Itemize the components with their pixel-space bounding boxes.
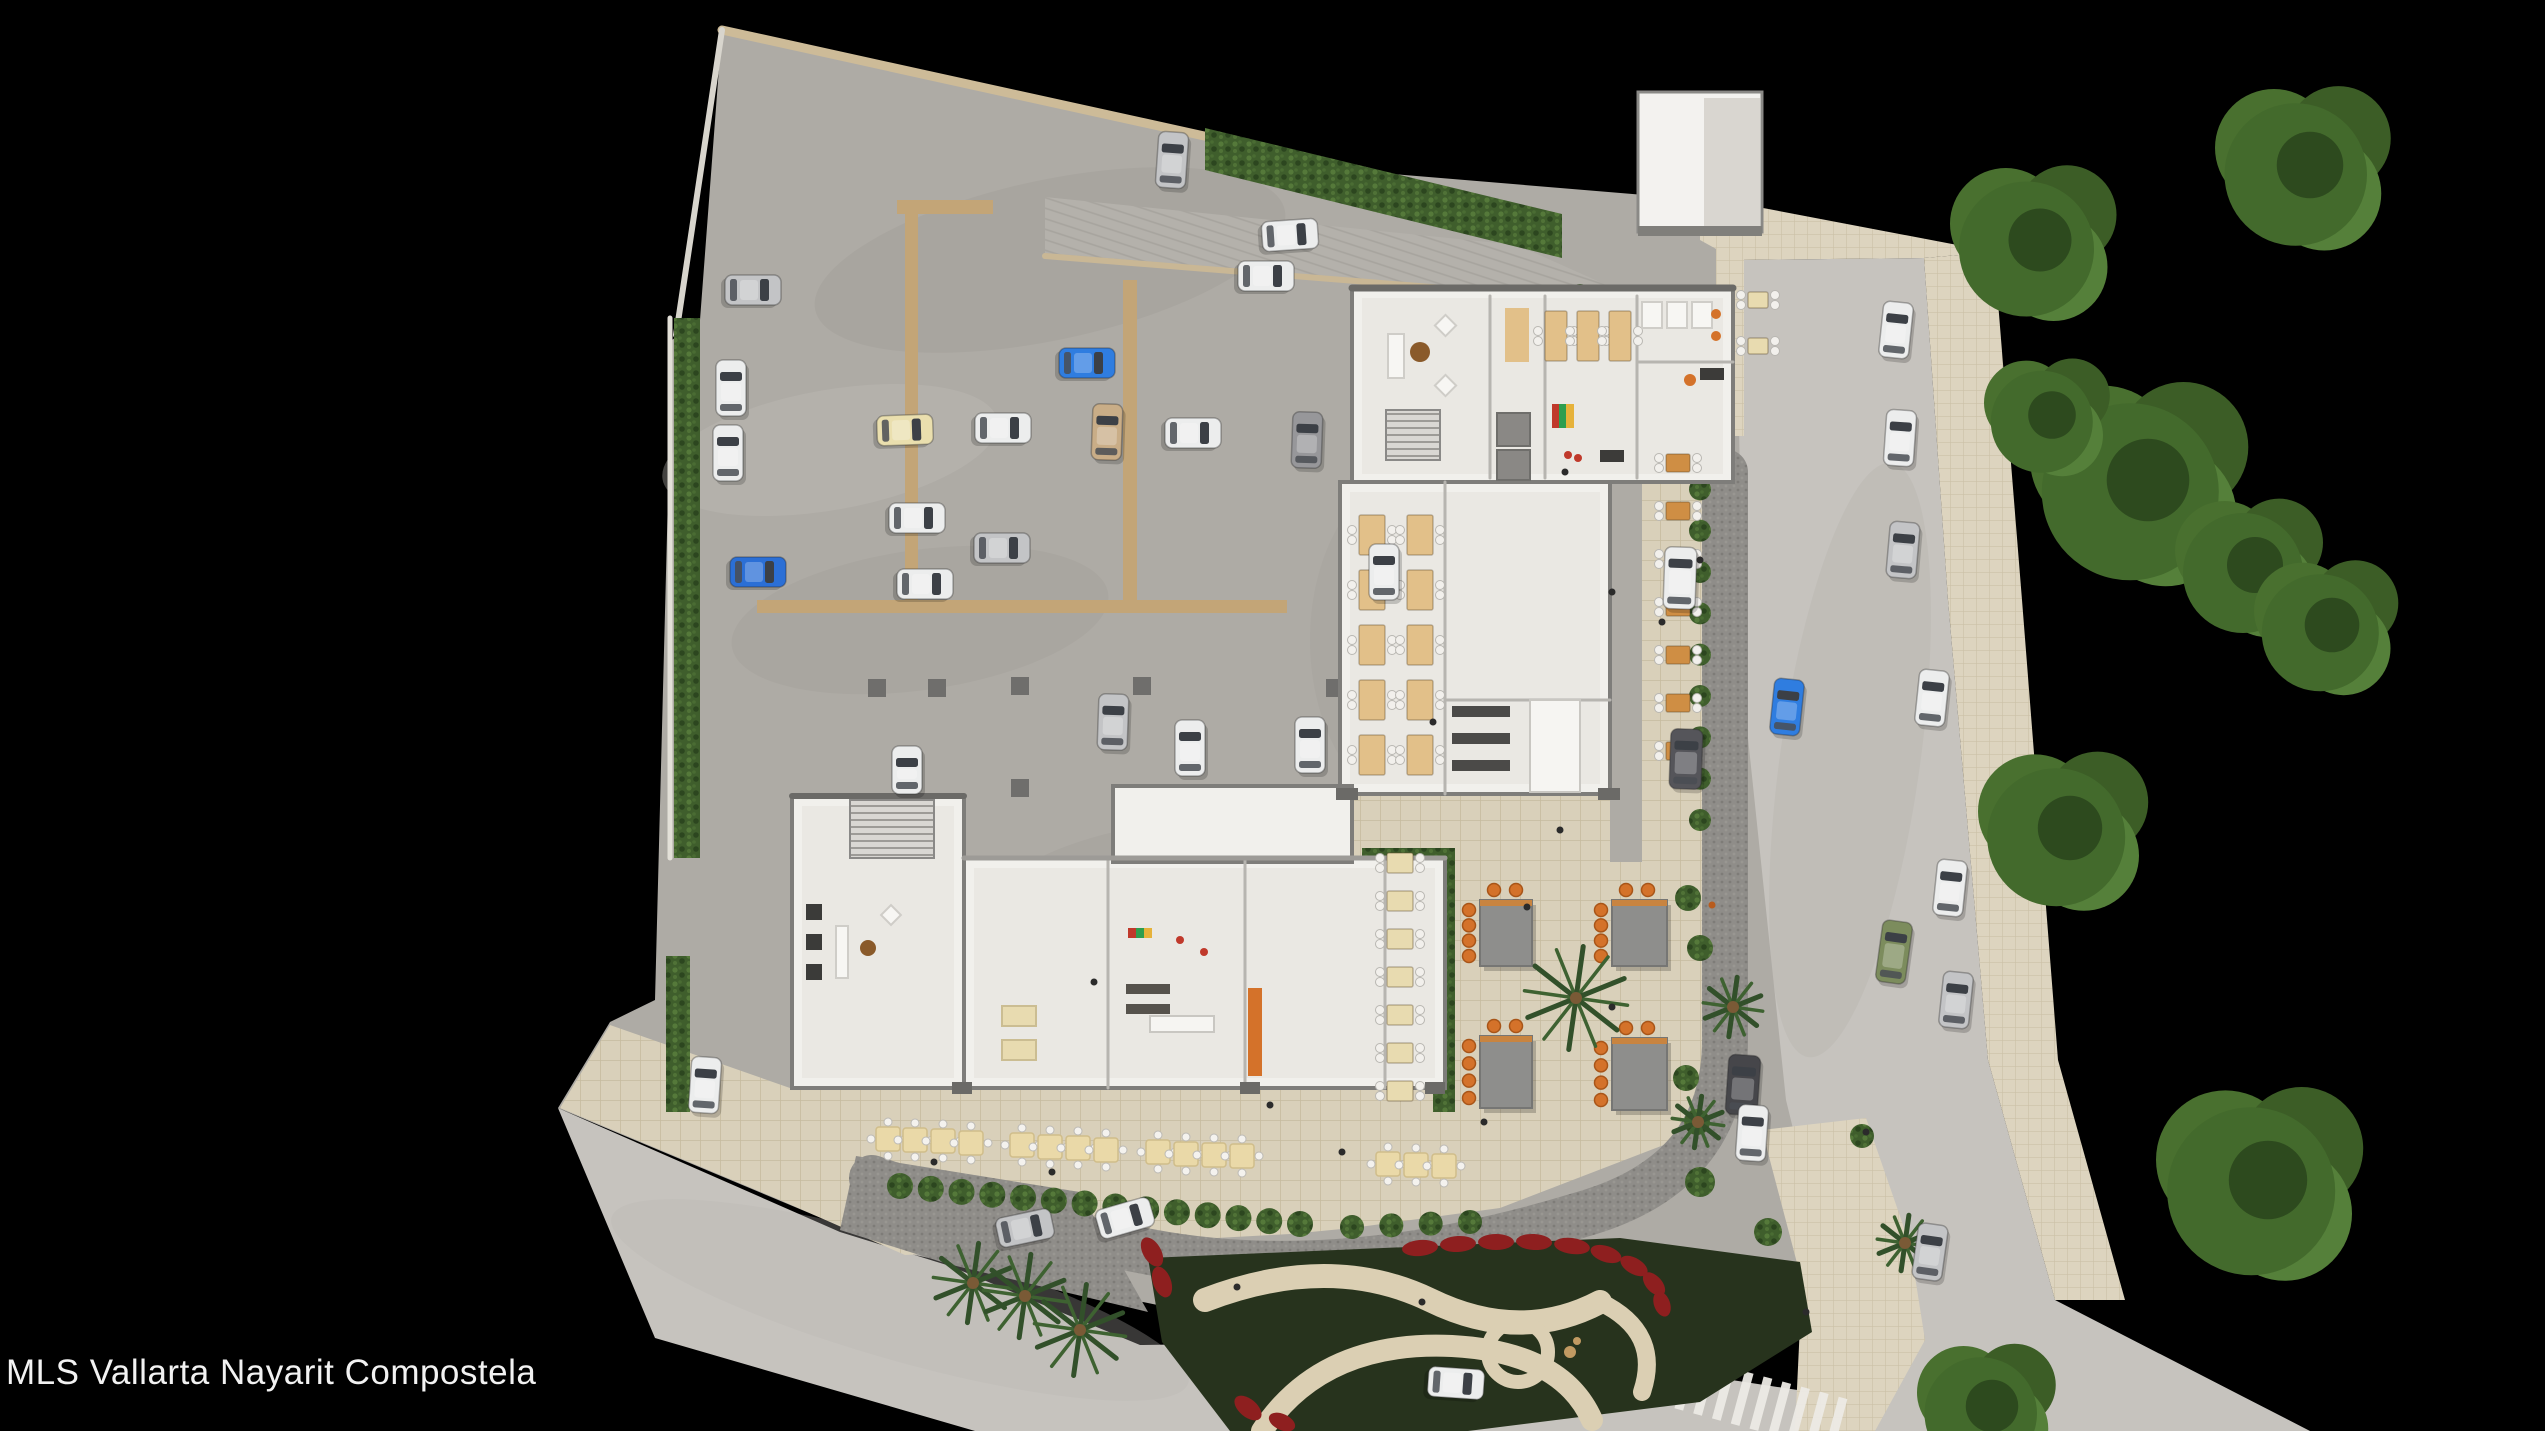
orange-table	[1595, 1059, 1608, 1072]
chair	[1395, 1161, 1403, 1169]
shops-hedge-2	[1419, 1212, 1443, 1236]
red-item	[1176, 936, 1184, 944]
chair	[1693, 704, 1702, 713]
car-rear-window	[1667, 597, 1691, 605]
parked-car	[1295, 717, 1328, 777]
car-windshield	[760, 279, 769, 301]
table-top	[1407, 570, 1433, 610]
chair	[1436, 581, 1445, 590]
chair	[1165, 1150, 1173, 1158]
palm-crown	[1074, 1324, 1086, 1336]
chair	[1348, 646, 1357, 655]
garden-shrub	[1754, 1218, 1782, 1246]
market-shelf	[1128, 928, 1136, 938]
gazebo-beam	[1480, 1036, 1532, 1042]
car-windshield	[1096, 416, 1118, 426]
shops-hedge	[1287, 1211, 1313, 1237]
chair	[1367, 1160, 1375, 1168]
table-top	[1666, 454, 1690, 472]
street-parked-car	[1938, 971, 1977, 1034]
table-top	[1407, 625, 1433, 665]
car-rear-window	[902, 573, 909, 595]
car-roof	[721, 383, 741, 401]
pillar-cap	[1240, 1082, 1260, 1094]
chair	[1655, 550, 1664, 559]
orange-table	[1463, 1057, 1476, 1070]
chair	[1693, 656, 1702, 665]
shops-hedge-2	[1340, 1215, 1364, 1239]
chair	[1396, 636, 1405, 645]
table-top	[1666, 646, 1690, 664]
parked-car	[1369, 544, 1402, 604]
orange-table	[1463, 950, 1476, 963]
car-roof	[892, 420, 911, 441]
bath-stall	[1642, 302, 1662, 328]
car-windshield	[912, 418, 922, 440]
chair	[1737, 347, 1746, 356]
car-roof	[694, 1079, 715, 1098]
chair	[1436, 591, 1445, 600]
car-rear-window	[735, 561, 742, 583]
lane-parked-suv	[1663, 546, 1700, 613]
car-windshield	[1273, 265, 1282, 287]
chair	[967, 1122, 975, 1130]
car-roof	[1945, 994, 1967, 1014]
gazebo-canopy	[1612, 1038, 1667, 1110]
chair	[1416, 978, 1425, 987]
shops-hedge	[887, 1173, 913, 1199]
orange-table	[1463, 1040, 1476, 1053]
chair	[884, 1118, 892, 1126]
chair	[1018, 1124, 1026, 1132]
chair	[1119, 1146, 1127, 1154]
person	[931, 1159, 938, 1166]
shop-table	[1002, 1006, 1036, 1026]
chair	[1348, 746, 1357, 755]
person	[1709, 902, 1716, 909]
desk	[1700, 368, 1724, 380]
dog	[1564, 1346, 1576, 1358]
pillar-cap	[952, 1082, 972, 1094]
chair	[1771, 301, 1780, 310]
chair	[1655, 512, 1664, 521]
pillar	[1133, 677, 1151, 695]
pillar-cap	[1425, 1082, 1445, 1094]
car-windshield	[1890, 421, 1913, 432]
shops-hedge	[1010, 1185, 1036, 1211]
kitchen-counter	[1452, 733, 1510, 744]
palm-crown	[1899, 1237, 1911, 1249]
palm-crown	[967, 1277, 979, 1289]
chair	[1737, 291, 1746, 300]
driving-car	[1257, 218, 1319, 255]
chair	[1655, 656, 1664, 665]
orange-table	[1595, 1076, 1608, 1089]
table-top	[1577, 311, 1599, 361]
floor	[974, 868, 1435, 1078]
person	[1863, 1129, 1870, 1136]
car-rear-window	[730, 279, 737, 301]
chair	[1737, 337, 1746, 346]
palm-crown	[1019, 1290, 1031, 1302]
shops-hedge	[1195, 1202, 1221, 1228]
car-roof	[1374, 567, 1394, 585]
car-rear-window	[1179, 764, 1201, 771]
person	[1267, 1102, 1274, 1109]
chair	[984, 1139, 992, 1147]
car-windshield	[1299, 729, 1321, 738]
chair	[1655, 464, 1664, 473]
chair	[1440, 1145, 1448, 1153]
chair	[1376, 1006, 1385, 1015]
chair	[1693, 646, 1702, 655]
chair	[1436, 526, 1445, 535]
car-roof	[904, 508, 922, 528]
shops-hedge	[1256, 1208, 1282, 1234]
chair	[1416, 1082, 1425, 1091]
chair	[1416, 968, 1425, 977]
chair	[1029, 1143, 1037, 1151]
chair	[1384, 1143, 1392, 1151]
table-top	[1545, 311, 1567, 361]
chair	[1598, 337, 1607, 346]
parked-car	[893, 569, 953, 602]
person	[1562, 469, 1569, 476]
chair	[1655, 694, 1664, 703]
car-windshield	[1010, 417, 1019, 439]
car-roof	[1882, 943, 1905, 970]
parked-car	[892, 746, 925, 798]
chair	[1348, 701, 1357, 710]
chair	[1348, 536, 1357, 545]
palm-crown	[1727, 1001, 1739, 1013]
sofa	[836, 926, 848, 978]
person	[1419, 1299, 1426, 1306]
stairs-main	[1386, 410, 1440, 460]
chair	[1238, 1169, 1246, 1177]
chair	[1416, 1044, 1425, 1053]
chair	[1154, 1165, 1162, 1173]
car-roof	[1300, 740, 1320, 758]
car-roof	[1097, 427, 1118, 446]
car-windshield	[1668, 559, 1692, 569]
car-roof	[1180, 743, 1200, 761]
chair	[1396, 701, 1405, 710]
car-rear-window	[1243, 265, 1250, 287]
watermark-text: MLS Vallarta Nayarit Compostela	[6, 1353, 536, 1392]
lane-parked-van	[1669, 728, 1706, 793]
coffee-table	[1410, 342, 1430, 362]
chair	[950, 1139, 958, 1147]
terrace-hedge	[1689, 520, 1711, 542]
street-shrubs	[1675, 885, 1701, 911]
street-parked-car	[1885, 521, 1923, 584]
chair	[1566, 327, 1575, 336]
red-flowers	[1478, 1234, 1514, 1250]
car-roof	[1885, 324, 1907, 344]
chair	[1436, 636, 1445, 645]
chair	[1046, 1126, 1054, 1134]
table-top	[1407, 680, 1433, 720]
chair	[1193, 1151, 1201, 1159]
chair	[1255, 1152, 1263, 1160]
chair	[1436, 536, 1445, 545]
chair	[1348, 526, 1357, 535]
car-roof	[897, 769, 917, 779]
gazebo-beam	[1612, 900, 1667, 906]
market-shelf	[1136, 928, 1144, 938]
car-windshield	[717, 437, 739, 446]
parked-car	[1291, 411, 1326, 472]
chair	[1102, 1129, 1110, 1137]
chair	[1436, 756, 1445, 765]
orange-table	[1463, 919, 1476, 932]
elevator	[1497, 413, 1530, 446]
car-rear-window	[882, 420, 890, 442]
tree-core	[2229, 1141, 2307, 1219]
chair	[1416, 1006, 1425, 1015]
pillar	[1011, 677, 1029, 695]
driving-car	[1097, 693, 1132, 754]
orange-table	[1595, 904, 1608, 917]
palm-crown	[1692, 1116, 1704, 1128]
chair	[1423, 1162, 1431, 1170]
person	[1049, 1169, 1056, 1176]
chair	[1598, 327, 1607, 336]
orange-bar	[1248, 988, 1262, 1076]
car-roof	[1674, 752, 1697, 775]
car-rear-window	[1170, 422, 1177, 444]
white-counter	[1150, 1016, 1214, 1032]
gazebo-beam	[1612, 1038, 1667, 1044]
car-roof	[745, 562, 763, 582]
person	[1339, 1149, 1346, 1156]
car-windshield	[1094, 352, 1103, 374]
gazebo-canopy	[1612, 900, 1667, 966]
chair	[1348, 581, 1357, 590]
kitchen-counter	[1452, 706, 1510, 717]
car-roof	[1892, 544, 1913, 564]
table-top	[1609, 311, 1631, 361]
person	[1609, 1004, 1616, 1011]
chair	[1376, 940, 1385, 949]
chair	[1018, 1158, 1026, 1166]
chair	[1416, 864, 1425, 873]
chair	[1693, 464, 1702, 473]
chair	[1376, 854, 1385, 863]
chair	[1771, 347, 1780, 356]
parked-car	[1091, 403, 1126, 464]
chair	[1416, 930, 1425, 939]
chair	[1376, 978, 1385, 987]
orange-table	[1463, 934, 1476, 947]
pillar-cap	[1598, 788, 1620, 800]
car-rear-window	[1101, 738, 1123, 746]
chair	[1416, 1054, 1425, 1063]
orange-table	[1463, 1092, 1476, 1105]
chair	[1655, 704, 1664, 713]
chair	[894, 1136, 902, 1144]
car-windshield	[1102, 706, 1124, 716]
car-windshield	[1732, 1066, 1757, 1077]
orange-table	[1463, 1074, 1476, 1087]
person	[1659, 619, 1666, 626]
chair	[1440, 1179, 1448, 1187]
chair	[1376, 1054, 1385, 1063]
chair	[1376, 1016, 1385, 1025]
kitchen-island	[1530, 700, 1580, 792]
chair	[1210, 1134, 1218, 1142]
chair	[1693, 512, 1702, 521]
tree-core	[2107, 439, 2190, 522]
parked-car	[716, 360, 749, 420]
parked-car	[872, 414, 933, 449]
table-top	[1359, 680, 1385, 720]
table-top	[1666, 502, 1690, 520]
chair	[1436, 646, 1445, 655]
food-display	[1574, 454, 1582, 462]
chair	[1137, 1148, 1145, 1156]
tree-core	[2009, 209, 2072, 272]
orange-table	[1642, 884, 1655, 897]
chair	[1436, 701, 1445, 710]
street-shrubs	[1687, 935, 1713, 961]
chair	[1396, 526, 1405, 535]
car-windshield	[1893, 533, 1916, 544]
chair	[1396, 536, 1405, 545]
pillar	[868, 679, 886, 697]
street-parked-car	[1914, 669, 1953, 732]
car-rear-window	[1295, 456, 1317, 464]
car-windshield	[896, 758, 918, 767]
car-roof	[1889, 432, 1910, 451]
car-windshield	[1296, 223, 1307, 246]
driving-car	[1155, 131, 1192, 193]
driving-car	[1175, 720, 1208, 780]
car-windshield	[1742, 1116, 1765, 1127]
chair	[1436, 746, 1445, 755]
person	[1234, 1284, 1241, 1291]
food-display	[1564, 451, 1572, 459]
orange-table	[1463, 904, 1476, 917]
dog	[1573, 1337, 1581, 1345]
elevator	[1497, 450, 1530, 480]
garden-shrub	[1850, 1124, 1874, 1148]
rendering-canvas: MLS Vallarta Nayarit Compostela	[0, 0, 2545, 1431]
table-top	[1387, 929, 1413, 949]
chair	[884, 1152, 892, 1160]
car-rear-window	[894, 507, 901, 529]
chair	[1416, 1092, 1425, 1101]
chair	[1693, 694, 1702, 703]
pillar-cap	[1336, 788, 1358, 800]
shops-hedge	[918, 1176, 944, 1202]
shop-shelf	[1126, 1004, 1170, 1014]
chair	[1416, 1016, 1425, 1025]
chair	[1046, 1160, 1054, 1168]
car-roof	[1253, 266, 1271, 286]
orange-seat	[1711, 331, 1721, 341]
street-parked-car	[1883, 409, 1920, 471]
parked-car	[713, 425, 746, 485]
chair	[1737, 301, 1746, 310]
lane-marking	[905, 205, 918, 612]
street-parked-car	[1932, 859, 1971, 922]
orange-table	[1595, 934, 1608, 947]
car-roof	[1180, 423, 1198, 443]
shops-hedge	[1072, 1191, 1098, 1217]
car-roof	[1276, 225, 1295, 246]
building-mid-strip	[1113, 786, 1352, 862]
car-roof	[1939, 882, 1961, 902]
car-windshield	[1200, 422, 1209, 444]
chair	[1534, 337, 1543, 346]
table-top	[1387, 1043, 1413, 1063]
driving-car	[1423, 1366, 1485, 1403]
chair	[1102, 1163, 1110, 1171]
red-item	[1200, 948, 1208, 956]
chair	[1057, 1144, 1065, 1152]
orange-table	[1488, 884, 1501, 897]
chair	[1376, 892, 1385, 901]
tree-core	[2028, 391, 2076, 439]
shops-hedge-2	[1458, 1210, 1482, 1234]
car-roof	[740, 280, 758, 300]
shops-hedge	[949, 1179, 975, 1205]
parked-car	[1055, 348, 1115, 381]
chair	[1238, 1135, 1246, 1143]
chair	[1771, 291, 1780, 300]
car-rear-window	[896, 782, 918, 789]
car-windshield	[720, 372, 742, 381]
chair	[867, 1135, 875, 1143]
left-hedge-lower	[666, 956, 690, 1112]
market-shelf	[1552, 404, 1559, 428]
table-top	[1387, 853, 1413, 873]
chair	[1376, 1092, 1385, 1101]
car-roof	[1918, 1246, 1940, 1267]
chair	[1348, 591, 1357, 600]
orange-table	[1620, 1022, 1633, 1035]
car-roof	[1731, 1077, 1754, 1100]
shops-hedge	[1225, 1205, 1251, 1231]
entry-structure-inner	[1704, 98, 1760, 226]
chair	[1693, 454, 1702, 463]
chair	[1416, 940, 1425, 949]
orange-table	[1595, 1094, 1608, 1107]
stairs-west	[850, 800, 934, 858]
car-roof	[1741, 1127, 1762, 1146]
chair	[1210, 1168, 1218, 1176]
chair	[939, 1120, 947, 1128]
orange-table	[1510, 1020, 1523, 1033]
lane-marking	[1123, 280, 1137, 610]
chair	[1221, 1152, 1229, 1160]
chair	[922, 1137, 930, 1145]
car-windshield	[1162, 143, 1185, 154]
car-roof	[989, 538, 1007, 558]
chair	[1085, 1146, 1093, 1154]
table-top	[1359, 735, 1385, 775]
person	[1609, 589, 1616, 596]
car-rear-window	[1673, 777, 1697, 785]
car-roof	[1297, 435, 1318, 454]
chair	[1457, 1162, 1465, 1170]
chair	[1412, 1144, 1420, 1152]
market-shelf	[1566, 404, 1574, 428]
car-roof	[1668, 570, 1691, 595]
chair	[1416, 902, 1425, 911]
